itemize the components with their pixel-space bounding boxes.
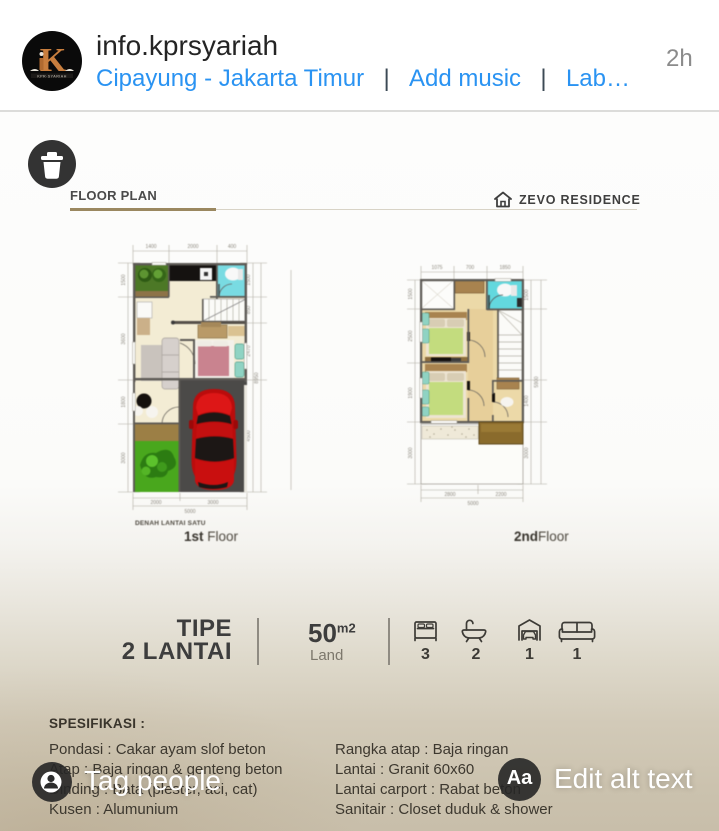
svg-text:KPR·SYARIAH: KPR·SYARIAH [37,74,67,78]
svg-text:3000: 3000 [408,447,414,458]
svg-text:1800: 1800 [121,396,127,407]
svg-text:3600: 3600 [121,333,127,344]
svg-text:1500: 1500 [408,288,414,299]
svg-text:1075: 1075 [431,265,442,271]
svg-text:700: 700 [466,265,475,271]
svg-text:3: 3 [421,646,430,663]
svg-text:1: 1 [525,646,534,663]
svg-text:1900: 1900 [408,387,414,398]
svg-text:3000: 3000 [207,500,218,506]
svg-text:8950: 8950 [254,372,260,383]
svg-text:1: 1 [573,646,582,663]
svg-text:1400: 1400 [524,395,530,406]
svg-text:5900: 5900 [534,376,540,387]
svg-text:2200: 2200 [495,492,506,498]
svg-text:2ndFloor: 2ndFloor [514,529,569,544]
svg-text:1400: 1400 [145,244,156,250]
svg-text:3000: 3000 [121,452,127,463]
svg-text:2500: 2500 [408,330,414,341]
svg-text:2800: 2800 [444,492,455,498]
svg-text:2000: 2000 [150,500,161,506]
svg-text:1500: 1500 [121,274,127,285]
svg-text:400: 400 [228,244,237,250]
svg-text:2: 2 [472,646,481,663]
svg-text:1st Floor: 1st Floor [184,529,239,544]
svg-text:2000: 2000 [187,244,198,250]
svg-text:DENAH LANTAI SATU: DENAH LANTAI SATU [135,520,206,527]
svg-text:5000: 5000 [184,509,195,515]
svg-text:1500: 1500 [524,289,530,300]
svg-text:5000: 5000 [467,501,478,507]
svg-text:3000: 3000 [524,447,530,458]
svg-text:1850: 1850 [499,265,510,271]
